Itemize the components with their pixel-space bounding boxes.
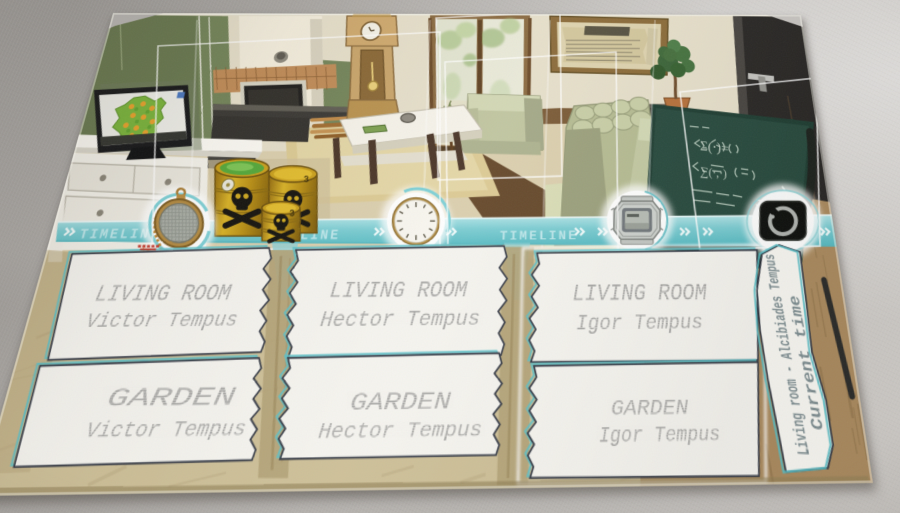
svg-text:TIMELINE: TIMELINE xyxy=(499,229,578,245)
svg-text:3: 3 xyxy=(290,208,295,219)
svg-text:3: 3 xyxy=(304,174,310,184)
svg-text:GARDEN: GARDEN xyxy=(104,384,238,414)
svg-text:Σ(⋅)=: Σ(⋅)= xyxy=(700,138,729,156)
